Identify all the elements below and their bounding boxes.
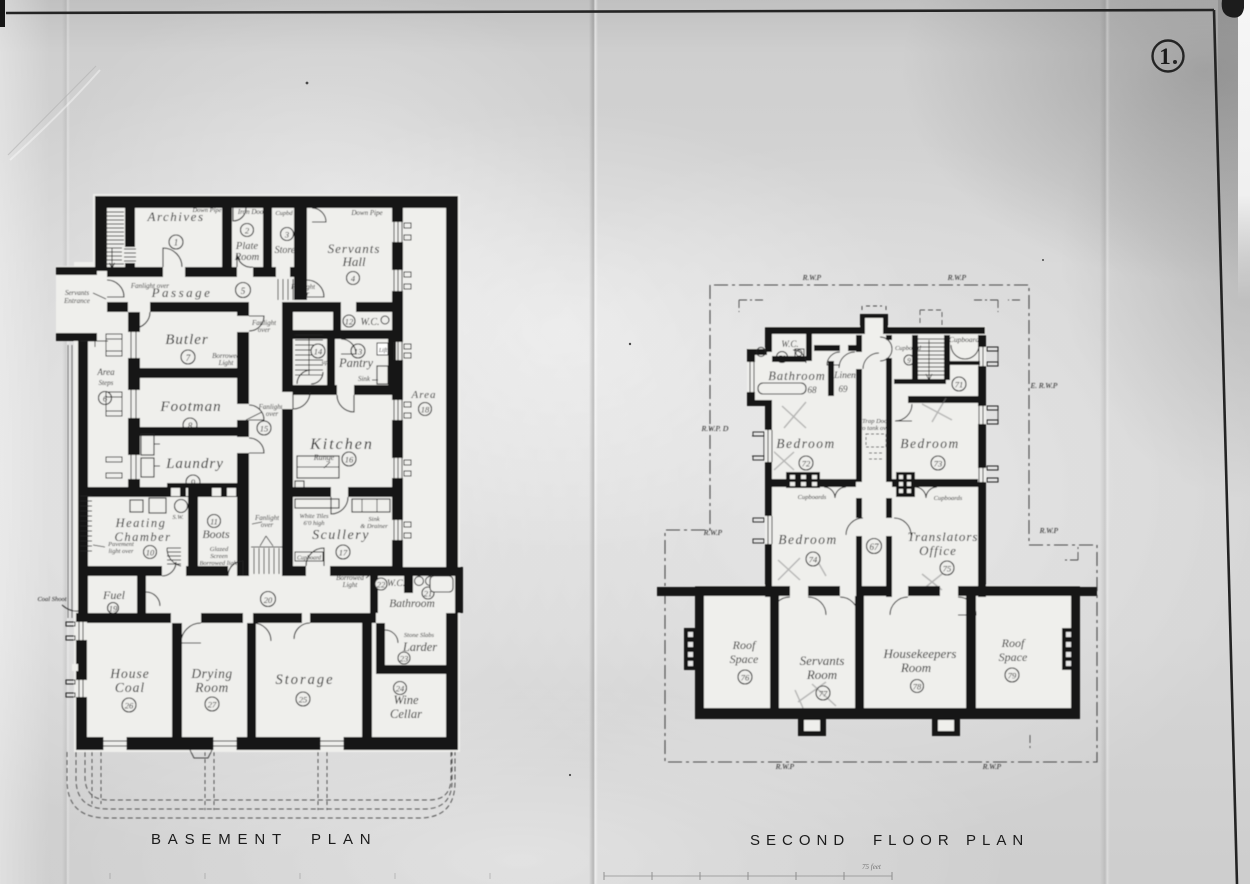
svg-text:1: 1 bbox=[174, 238, 179, 248]
svg-text:Cupboard: Cupboard bbox=[949, 335, 979, 344]
svg-text:Housekeepers: Housekeepers bbox=[883, 646, 957, 661]
svg-text:24: 24 bbox=[396, 684, 405, 694]
svg-text:16: 16 bbox=[345, 455, 354, 465]
svg-text:Room: Room bbox=[194, 680, 229, 695]
svg-text:S.W.: S.W. bbox=[172, 514, 184, 521]
svg-text:PLAN: PLAN bbox=[966, 832, 1029, 849]
svg-text:Cellar: Cellar bbox=[390, 707, 422, 721]
svg-text:Bathroom: Bathroom bbox=[768, 369, 826, 383]
svg-text:5: 5 bbox=[241, 286, 246, 296]
svg-text:Servants: Servants bbox=[800, 653, 845, 668]
svg-text:House: House bbox=[109, 666, 150, 681]
svg-text:Sink: Sink bbox=[358, 375, 371, 383]
svg-text:6'0 high: 6'0 high bbox=[303, 520, 324, 527]
svg-text:19: 19 bbox=[109, 604, 118, 614]
svg-text:R.W.P: R.W.P bbox=[703, 528, 723, 537]
svg-text:Storage: Storage bbox=[275, 672, 334, 688]
svg-text:Bathroom: Bathroom bbox=[389, 598, 435, 610]
svg-text:12: 12 bbox=[345, 317, 354, 327]
svg-text:Bedroom: Bedroom bbox=[776, 436, 836, 451]
svg-text:Linen: Linen bbox=[833, 371, 856, 381]
svg-text:78: 78 bbox=[913, 682, 922, 692]
svg-text:W.C.: W.C. bbox=[781, 339, 798, 349]
svg-text:71: 71 bbox=[955, 380, 964, 390]
svg-text:Bedroom: Bedroom bbox=[900, 436, 960, 451]
svg-text:R.W.P: R.W.P bbox=[802, 273, 822, 282]
svg-text:Pavement: Pavement bbox=[107, 541, 134, 548]
svg-text:18: 18 bbox=[421, 405, 430, 415]
svg-text:Iron Door: Iron Door bbox=[237, 208, 267, 216]
svg-text:Light: Light bbox=[342, 581, 359, 589]
svg-text:Area: Area bbox=[411, 389, 437, 401]
svg-text:Butler: Butler bbox=[165, 332, 209, 348]
svg-text:73: 73 bbox=[934, 459, 943, 469]
svg-text:Roof: Roof bbox=[732, 638, 757, 652]
svg-text:over: over bbox=[258, 326, 271, 334]
svg-text:R.W.P: R.W.P bbox=[982, 762, 1002, 771]
svg-text:Translators: Translators bbox=[908, 529, 979, 544]
svg-text:76: 76 bbox=[741, 673, 750, 683]
svg-text:Room: Room bbox=[900, 660, 931, 675]
svg-text:Space: Space bbox=[999, 650, 1028, 664]
svg-text:75 feet: 75 feet bbox=[862, 863, 882, 871]
svg-text:& Drainer: & Drainer bbox=[360, 523, 388, 530]
svg-text:25: 25 bbox=[299, 695, 308, 705]
svg-text:68: 68 bbox=[808, 385, 818, 395]
svg-text:Store: Store bbox=[275, 245, 296, 256]
svg-text:Space: Space bbox=[730, 652, 759, 666]
svg-text:10: 10 bbox=[146, 548, 155, 558]
svg-text:74: 74 bbox=[809, 555, 818, 565]
svg-text:Down Pipe: Down Pipe bbox=[191, 207, 221, 214]
svg-text:Steps: Steps bbox=[99, 379, 114, 387]
svg-text:W.C.: W.C. bbox=[387, 579, 405, 589]
svg-text:Scullery: Scullery bbox=[312, 528, 370, 543]
svg-text:Kitchen: Kitchen bbox=[309, 436, 374, 453]
svg-text:R.W.P: R.W.P bbox=[947, 273, 967, 282]
svg-text:R.W.P. D: R.W.P. D bbox=[701, 424, 729, 433]
svg-text:67: 67 bbox=[870, 542, 880, 552]
svg-text:Servants: Servants bbox=[65, 289, 89, 297]
svg-text:Bedroom: Bedroom bbox=[778, 532, 838, 547]
svg-text:Heating: Heating bbox=[115, 516, 167, 530]
svg-text:E. R.W.P: E. R.W.P bbox=[1030, 381, 1058, 390]
svg-text:Sink: Sink bbox=[368, 516, 379, 523]
svg-text:Cupboards: Cupboards bbox=[934, 495, 963, 502]
svg-text:27: 27 bbox=[208, 700, 217, 710]
svg-text:R.W.P: R.W.P bbox=[1039, 526, 1059, 535]
svg-text:Room: Room bbox=[806, 667, 837, 682]
svg-text:22: 22 bbox=[377, 580, 386, 590]
svg-text:20: 20 bbox=[264, 595, 273, 605]
svg-text:1: 1 bbox=[1159, 44, 1171, 69]
svg-text:Glazed: Glazed bbox=[210, 546, 229, 553]
svg-text:R.W.P: R.W.P bbox=[775, 762, 795, 771]
svg-text:26: 26 bbox=[125, 701, 134, 711]
svg-text:Pantry: Pantry bbox=[338, 356, 373, 370]
svg-text:Area: Area bbox=[96, 367, 115, 377]
svg-text:Coal: Coal bbox=[115, 680, 145, 695]
svg-text:Trap Door: Trap Door bbox=[862, 418, 890, 425]
svg-text:15: 15 bbox=[260, 424, 269, 434]
svg-text:72: 72 bbox=[802, 459, 811, 469]
svg-text:Coal Shoot: Coal Shoot bbox=[37, 596, 66, 603]
svg-text:Wine: Wine bbox=[394, 693, 419, 707]
svg-text:over: over bbox=[266, 410, 279, 418]
svg-text:Boots: Boots bbox=[202, 527, 230, 541]
svg-text:Borrowed light: Borrowed light bbox=[199, 560, 238, 567]
svg-text:79: 79 bbox=[1008, 671, 1017, 681]
svg-text:Office: Office bbox=[919, 543, 957, 558]
svg-text:23: 23 bbox=[400, 654, 409, 664]
svg-text:to tank over: to tank over bbox=[860, 425, 892, 432]
svg-text:Cupbd: Cupbd bbox=[275, 210, 293, 217]
svg-text:SECOND: SECOND bbox=[750, 832, 850, 849]
svg-text:9: 9 bbox=[907, 357, 911, 365]
svg-text:Stone Slabs: Stone Slabs bbox=[404, 632, 435, 639]
svg-text:light over: light over bbox=[108, 548, 134, 555]
svg-text:Passage: Passage bbox=[151, 285, 213, 300]
svg-text:3: 3 bbox=[284, 230, 289, 240]
svg-text:Cupboards: Cupboards bbox=[798, 494, 827, 501]
svg-text:11: 11 bbox=[210, 517, 218, 527]
svg-text:69: 69 bbox=[839, 384, 849, 394]
svg-text:Cupboard: Cupboard bbox=[297, 556, 322, 562]
svg-text:Screen: Screen bbox=[210, 553, 227, 560]
svg-text:14: 14 bbox=[314, 347, 323, 357]
svg-text:Light: Light bbox=[218, 359, 235, 367]
svg-text:PLAN: PLAN bbox=[311, 831, 377, 848]
svg-text:W.C.: W.C. bbox=[360, 317, 379, 328]
svg-text:Plate: Plate bbox=[235, 241, 258, 252]
svg-text:75: 75 bbox=[943, 564, 952, 574]
svg-text:Down Pipe: Down Pipe bbox=[350, 209, 382, 217]
svg-text:Footman: Footman bbox=[159, 399, 221, 415]
svg-text:Range: Range bbox=[313, 453, 335, 462]
svg-text:Laundry: Laundry bbox=[165, 456, 224, 472]
svg-text:Drying: Drying bbox=[190, 666, 232, 681]
svg-text:FLOOR: FLOOR bbox=[873, 832, 955, 849]
svg-text:Entrance: Entrance bbox=[63, 297, 90, 305]
svg-text:BASEMENT: BASEMENT bbox=[151, 831, 288, 848]
svg-text:over: over bbox=[261, 521, 274, 529]
svg-text:Fuel: Fuel bbox=[102, 588, 126, 602]
svg-text:Hall: Hall bbox=[341, 254, 366, 269]
svg-text:Roof: Roof bbox=[1001, 636, 1026, 650]
svg-text:17: 17 bbox=[339, 548, 348, 558]
svg-text:7: 7 bbox=[186, 353, 191, 363]
svg-text:White Tiles: White Tiles bbox=[299, 513, 329, 520]
svg-text:Larder: Larder bbox=[402, 640, 437, 654]
svg-text:Lift: Lift bbox=[378, 347, 388, 354]
